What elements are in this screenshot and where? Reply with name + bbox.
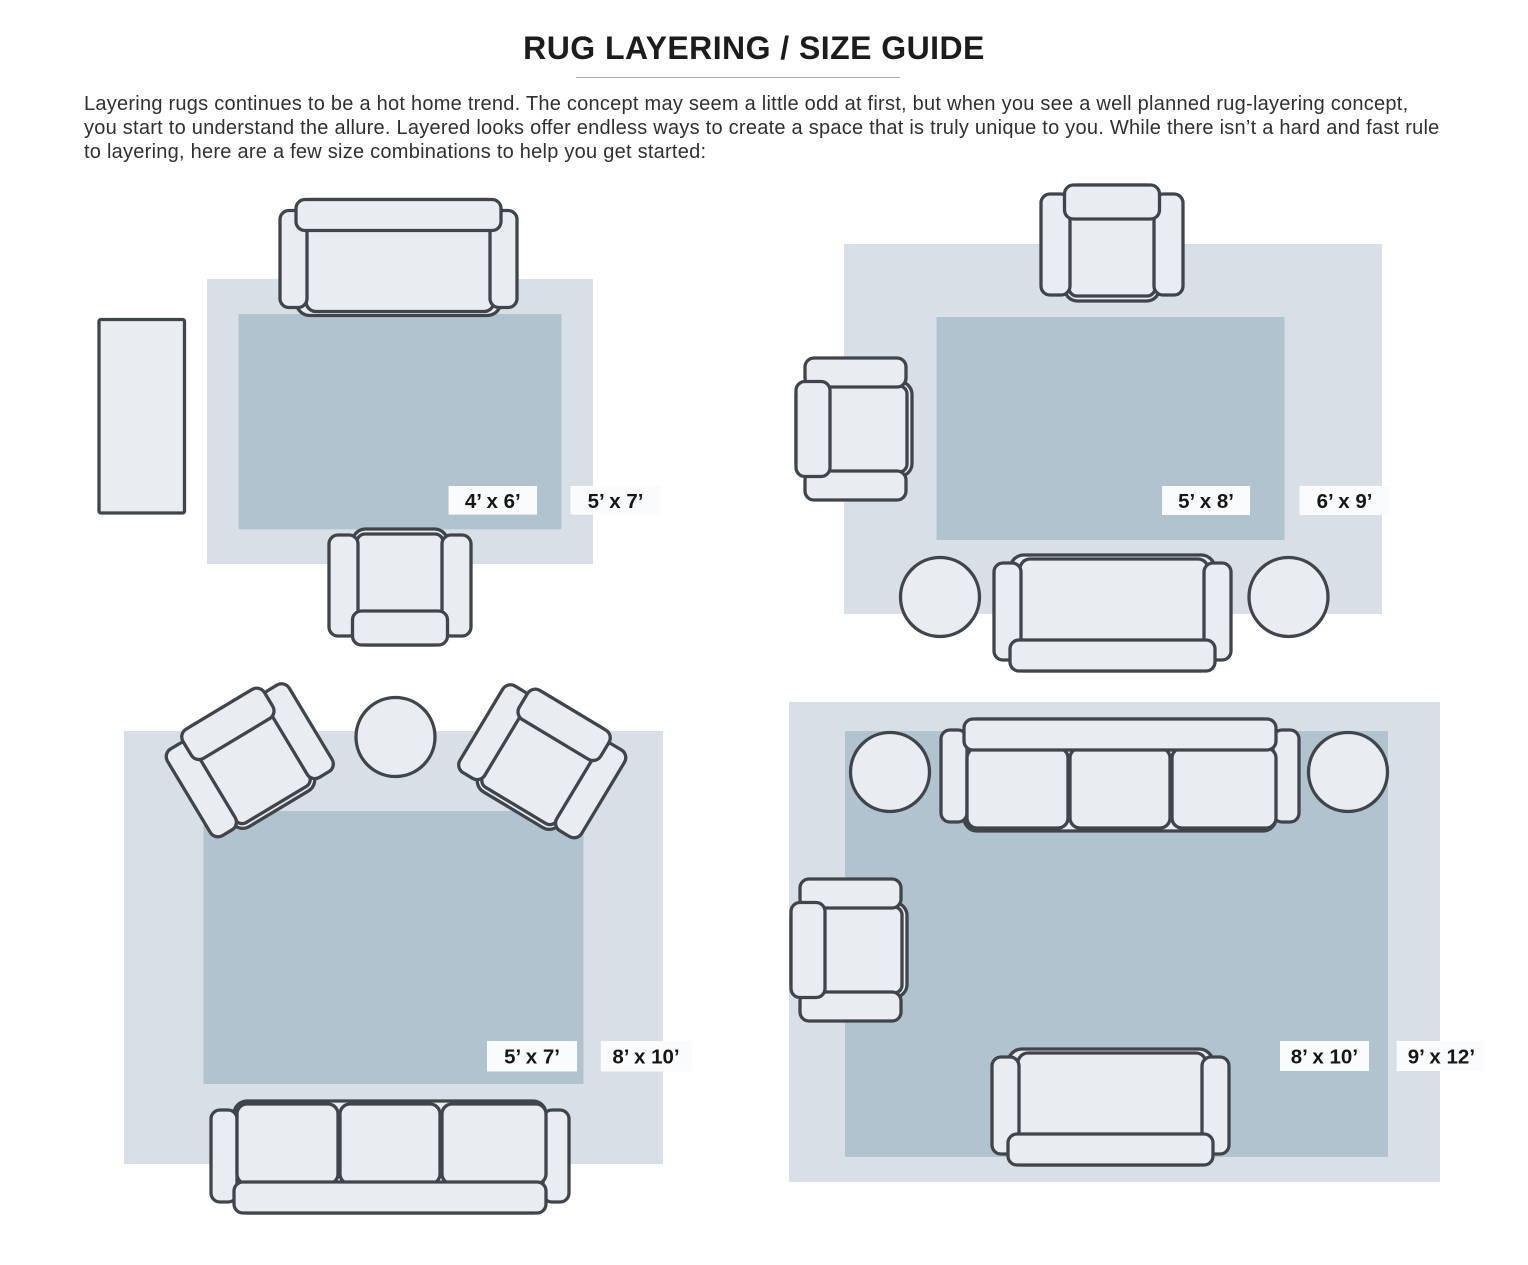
svg-text:5’ x 8’: 5’ x 8’ <box>1178 490 1234 513</box>
svg-text:5’ x 7’: 5’ x 7’ <box>588 490 644 513</box>
svg-text:6’ x 9’: 6’ x 9’ <box>1317 490 1373 513</box>
svg-text:8’ x 10’: 8’ x 10’ <box>1291 1046 1358 1069</box>
svg-text:5’ x 7’: 5’ x 7’ <box>504 1046 560 1069</box>
svg-text:9’ x 12’: 9’ x 12’ <box>1408 1046 1475 1069</box>
svg-text:8’ x 10’: 8’ x 10’ <box>612 1046 679 1069</box>
svg-text:4’ x 6’: 4’ x 6’ <box>465 490 521 513</box>
